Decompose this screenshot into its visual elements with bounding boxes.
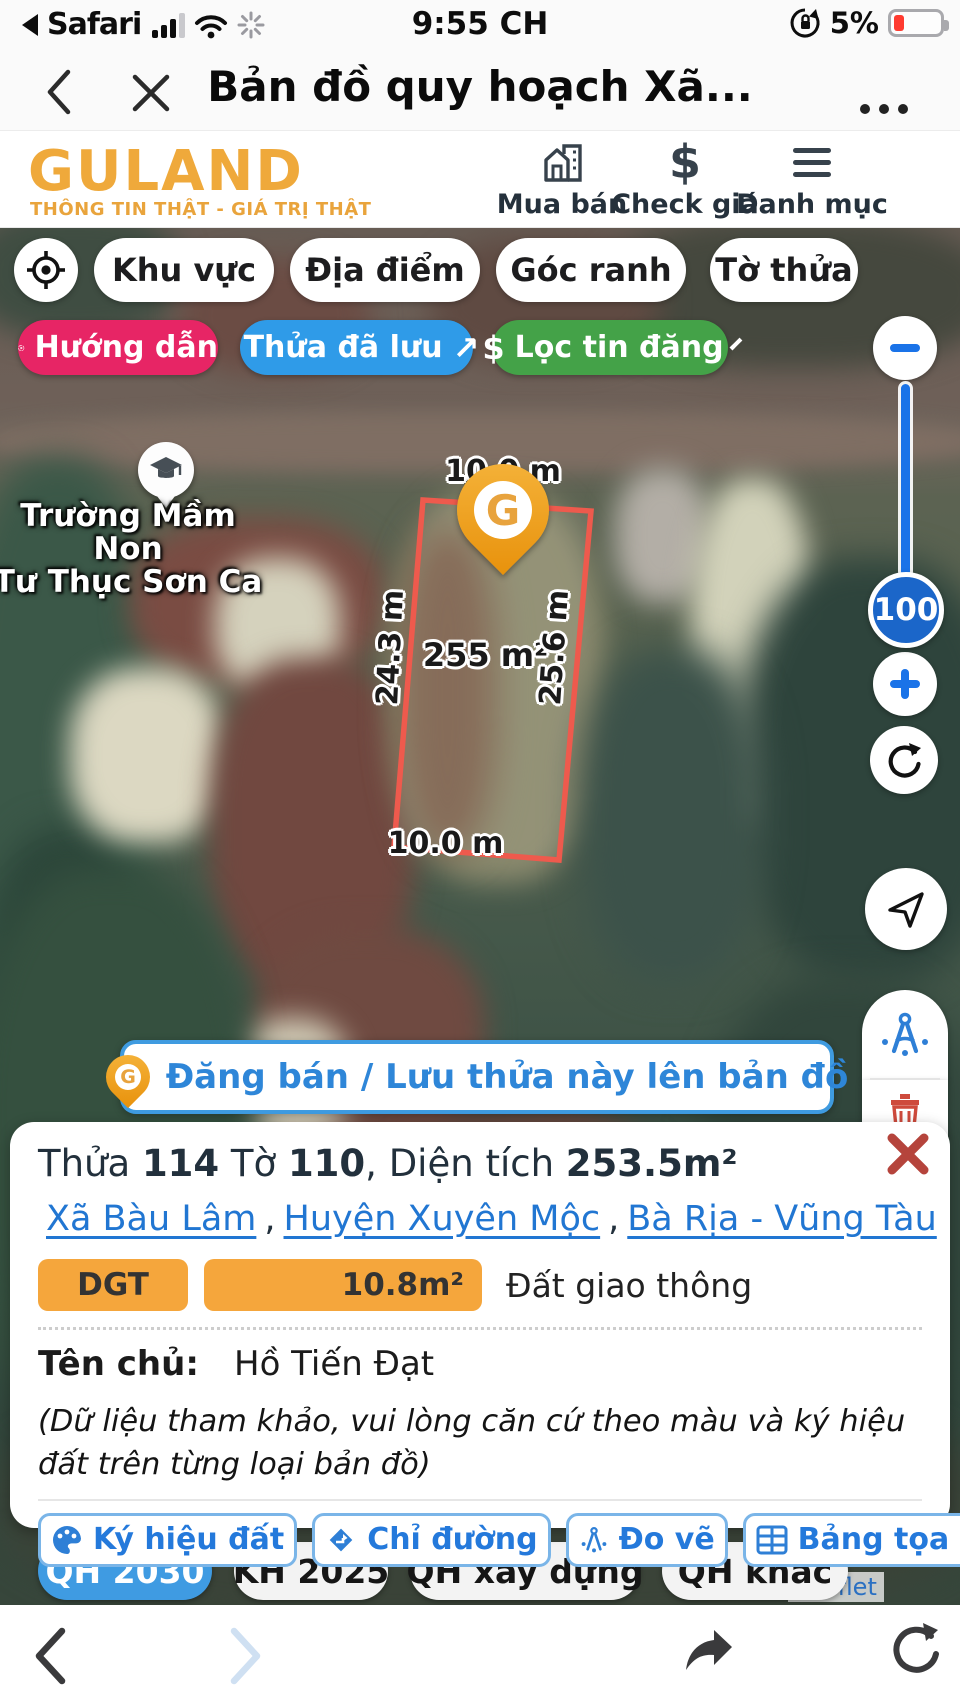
app-header: GULAND THÔNG TIN THẬT - GIÁ TRỊ THẬT Mua… — [0, 130, 960, 228]
close-icon — [885, 1131, 931, 1177]
zoom-slider[interactable] — [901, 384, 910, 576]
land-symbols-button[interactable]: Ký hiệu đất — [38, 1513, 297, 1567]
disclaimer-note: (Dữ liệu tham khảo, vui lòng căn cứ theo… — [38, 1400, 918, 1487]
land-use-code-badge: DGT — [38, 1259, 188, 1311]
owner-label: Tên chủ: — [38, 1344, 234, 1384]
land-use-name: Đất giao thông — [506, 1266, 752, 1305]
tab-to-thua[interactable]: Tờ thửa — [710, 238, 858, 302]
browser-back-icon[interactable] — [44, 68, 74, 116]
parcel-address: Xã Bàu Lâm, Huyện Xuyên Mộc, Bà Rịa - Vũ… — [38, 1199, 922, 1239]
parcel-info-panel: Thửa 114 Tờ 110, Diện tích 253.5m² Xã Bà… — [10, 1122, 950, 1528]
map-refresh-button[interactable] — [870, 726, 938, 794]
post-listing-button[interactable]: G Đăng bán / Lưu thửa này lên bản đồ — [120, 1040, 834, 1114]
school-poi-pin[interactable] — [138, 442, 194, 498]
zoom-level-bubble[interactable]: 100 — [868, 572, 944, 648]
tab-dia-diem[interactable]: Địa điểm — [290, 238, 480, 302]
page-title: Bản đồ quy hoạch Xã... — [180, 62, 780, 111]
dollar-icon: $ — [669, 139, 701, 185]
directions-button[interactable]: Chỉ đường — [312, 1513, 550, 1567]
graduation-cap-icon — [149, 455, 183, 485]
play-circle-icon — [18, 331, 25, 365]
browser-bar: Bản đồ quy hoạch Xã... — [0, 44, 960, 130]
land-use-area-badge: 10.8m² — [204, 1259, 482, 1311]
building-icon — [540, 139, 584, 185]
external-arrow-icon: ↗ — [453, 329, 480, 367]
screen: Safari 9:55 CH — [0, 0, 960, 1707]
panel-actions: Ký hiệu đất Chỉ đường Đo vẽ — [38, 1513, 922, 1567]
browser-close-icon[interactable] — [130, 72, 172, 114]
link-district[interactable]: Huyện Xuyên Mộc — [284, 1199, 601, 1239]
orientation-lock-icon — [789, 7, 821, 39]
refresh-icon — [885, 741, 923, 779]
owner-row: Tên chủ: Hồ Tiến Đạt — [38, 1344, 922, 1384]
browser-bottom-nav — [0, 1605, 960, 1707]
land-use-row: DGT 10.8m² Đất giao thông — [38, 1259, 922, 1311]
browser-menu-icon[interactable] — [860, 104, 908, 114]
share-icon[interactable] — [680, 1625, 738, 1677]
tab-khu-vuc[interactable]: Khu vực — [94, 238, 274, 302]
nav-forward-icon[interactable] — [228, 1627, 264, 1685]
my-location-button[interactable] — [865, 868, 947, 950]
owner-name: Hồ Tiến Đạt — [234, 1344, 434, 1384]
palette-icon — [51, 1524, 83, 1556]
crosshair-icon — [26, 250, 66, 290]
parcel-title: Thửa 114 Tờ 110, Diện tích 253.5m² — [38, 1142, 922, 1185]
guland-pin-letter: G — [474, 481, 532, 539]
drafting-compass-icon — [579, 1525, 609, 1555]
coordinates-table-button[interactable]: Bảng tọa độ — [743, 1513, 960, 1567]
divider — [38, 1499, 922, 1501]
measure-tool-button[interactable] — [862, 990, 948, 1080]
send-icon — [886, 889, 926, 929]
reload-icon[interactable] — [888, 1621, 942, 1679]
zoom-out-button[interactable] — [873, 316, 937, 380]
table-icon — [756, 1525, 788, 1555]
dashed-divider — [38, 1327, 922, 1330]
nav-back-icon[interactable] — [32, 1627, 68, 1685]
plus-icon — [890, 669, 920, 699]
hamburger-icon — [793, 139, 831, 185]
logo-tagline: THÔNG TIN THẬT - GIÁ TRỊ THẬT — [30, 199, 371, 220]
nav-danh-muc[interactable]: Danh mục — [737, 139, 887, 220]
dollar-icon: $ — [482, 329, 504, 367]
school-poi-label: Trường Mầm Non Tư Thục Sơn Ca — [0, 500, 268, 599]
directions-icon — [325, 1524, 357, 1556]
link-province[interactable]: Bà Rịa - Vũng Tàu — [627, 1199, 937, 1239]
locate-me-button[interactable] — [14, 238, 78, 302]
guland-logo[interactable]: GULAND — [28, 139, 304, 204]
saved-parcels-button[interactable]: Thửa đã lưu ↗ — [240, 320, 473, 375]
parcel-dim-bottom: 10.0 m — [363, 826, 528, 861]
panel-close-button[interactable] — [882, 1128, 934, 1180]
link-commune[interactable]: Xã Bàu Lâm — [46, 1199, 256, 1239]
battery-icon — [888, 9, 944, 37]
guide-button[interactable]: Hướng dẫn — [18, 320, 218, 375]
tab-goc-ranh[interactable]: Góc ranh — [496, 238, 686, 302]
zoom-in-button[interactable] — [873, 652, 937, 716]
battery-percent: 5% — [830, 6, 879, 40]
drafting-compass-icon — [879, 1009, 931, 1061]
measure-button[interactable]: Đo vẽ — [566, 1513, 728, 1567]
minus-icon — [890, 344, 920, 352]
filter-listings-button[interactable]: $ Lọc tin đăng — [492, 320, 728, 375]
status-bar: Safari 9:55 CH — [0, 0, 960, 44]
